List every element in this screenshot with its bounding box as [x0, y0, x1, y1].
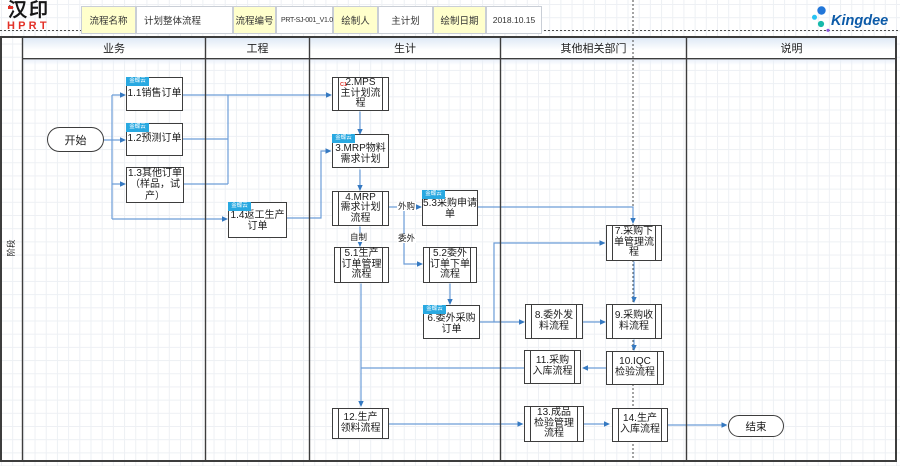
svg-text:Kingdee: Kingdee: [831, 13, 888, 29]
